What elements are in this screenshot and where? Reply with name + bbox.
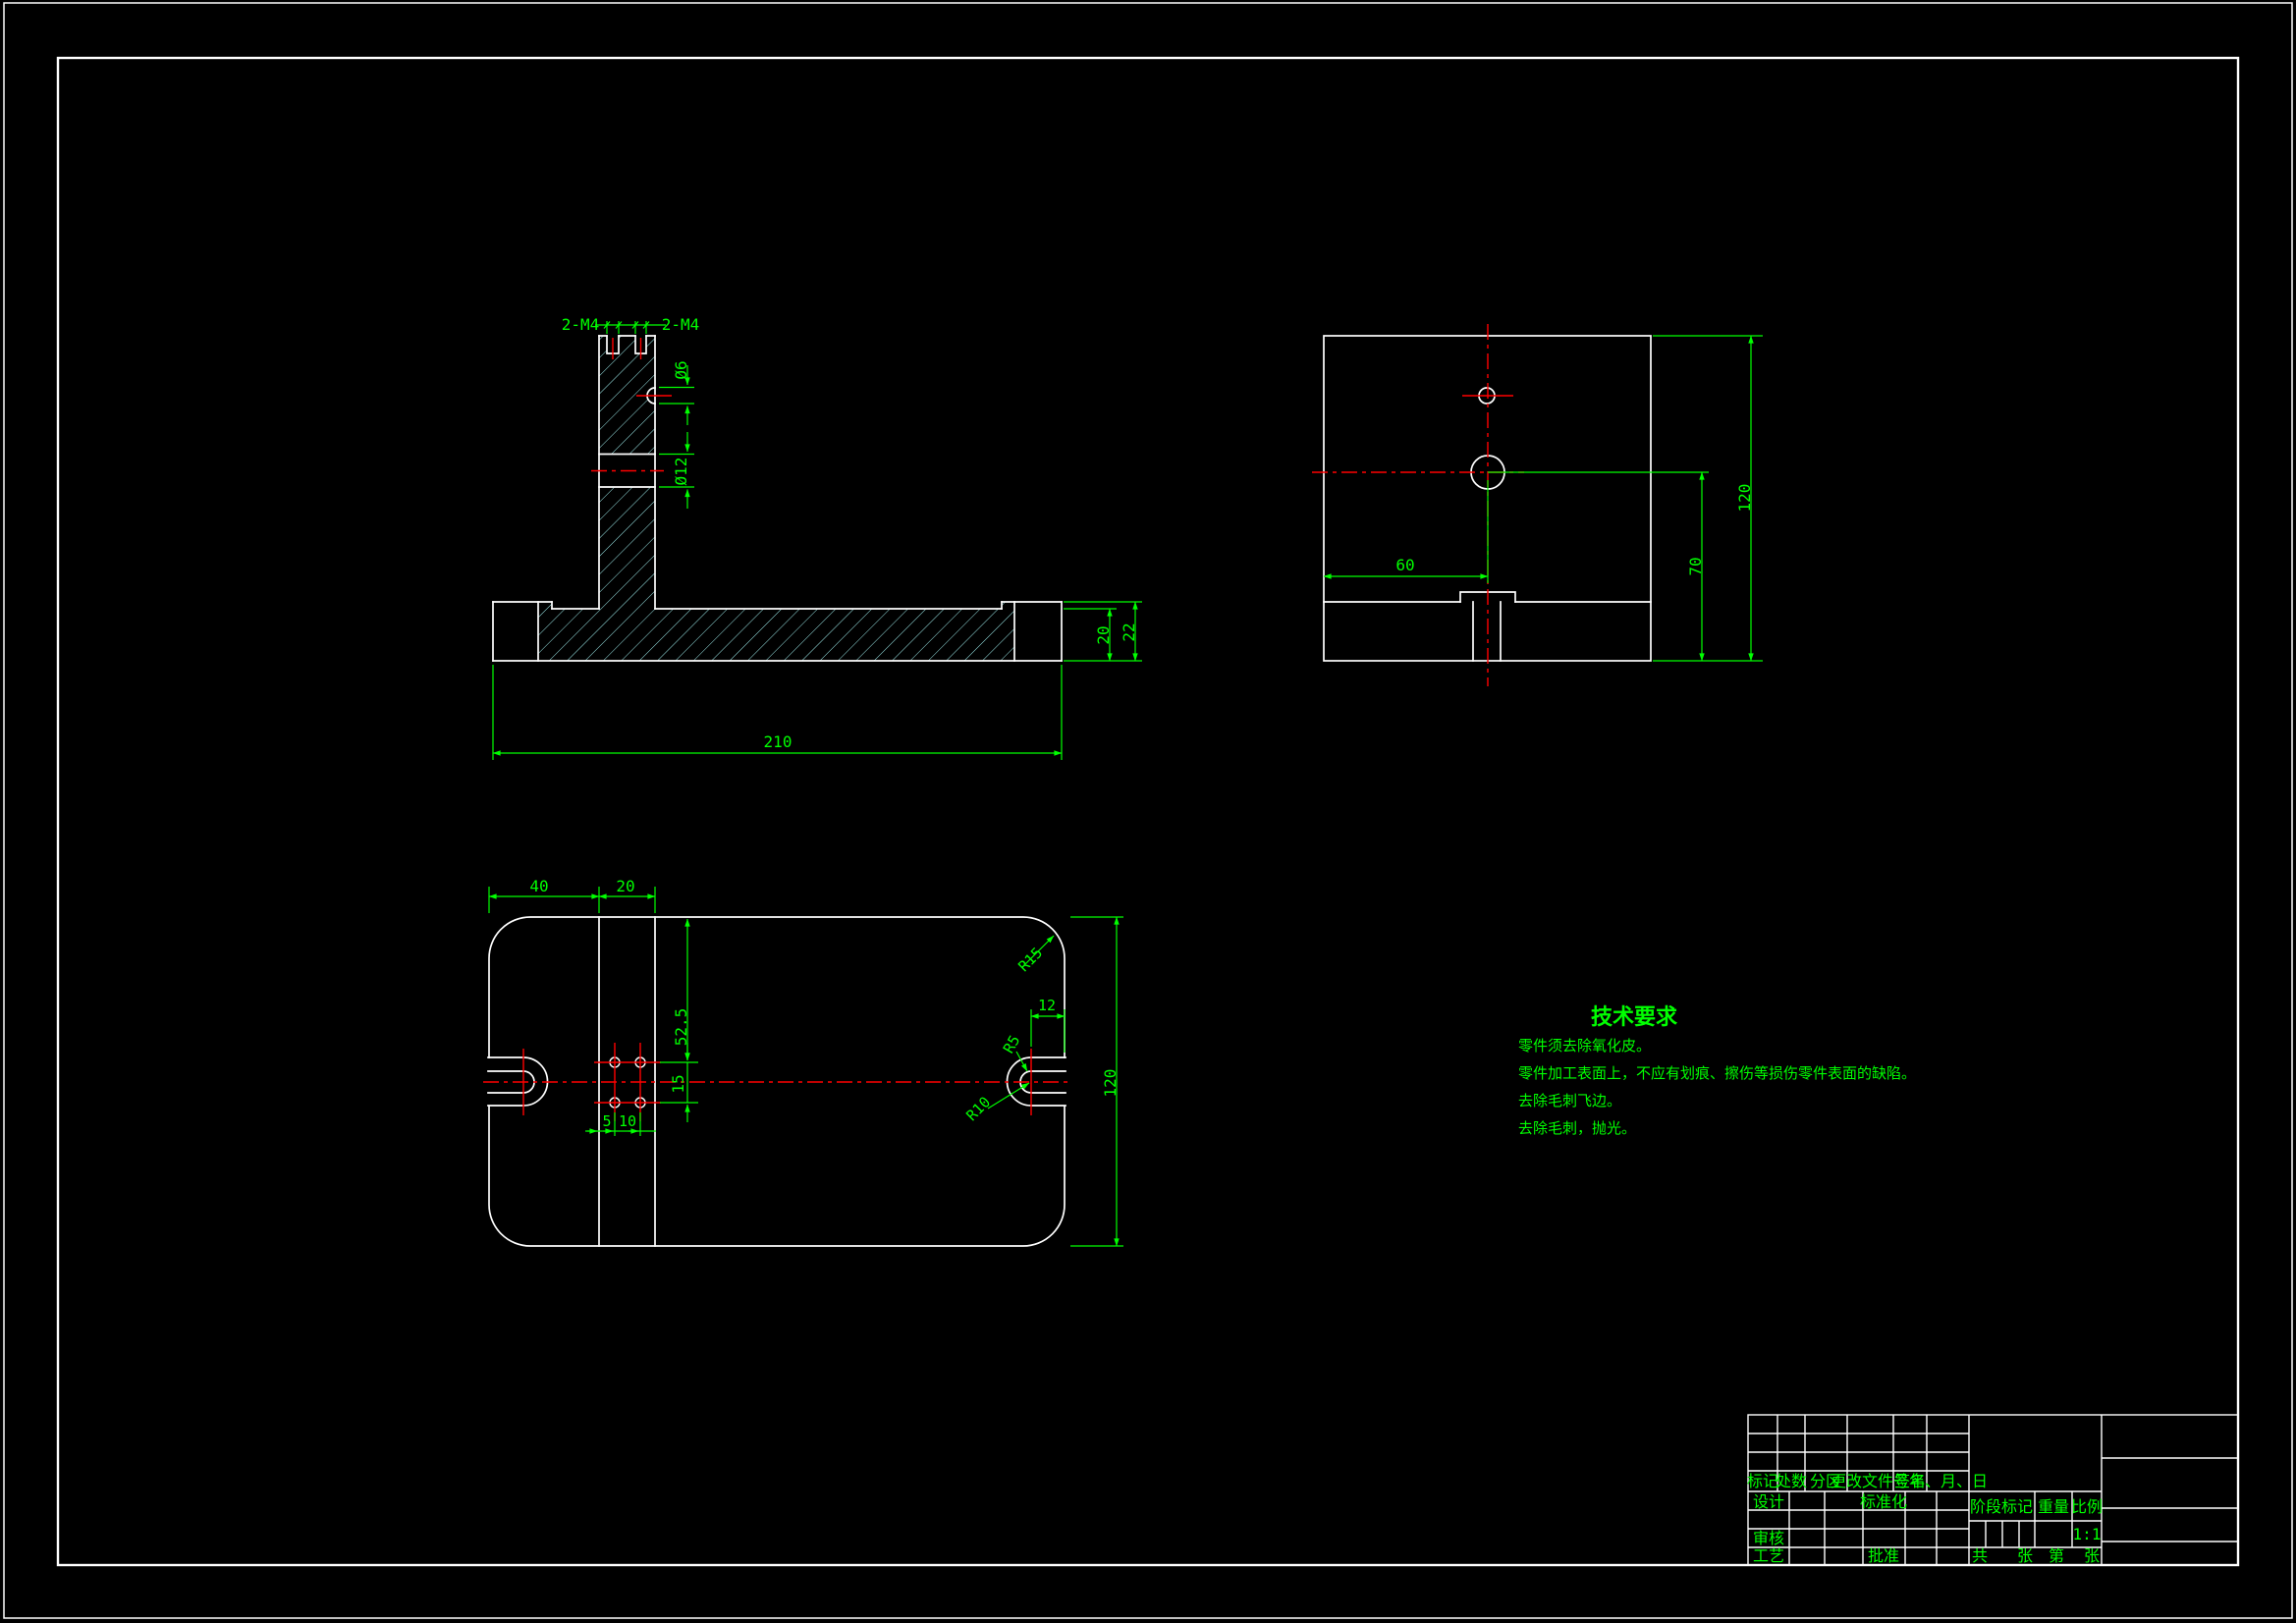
sheet-page-sheet: 张	[2084, 1546, 2100, 1565]
dim-holes-from-top: 52.5	[672, 1008, 690, 1047]
dim-hole-col-spacing: 10	[619, 1112, 636, 1130]
drawing-sheet: 2-M4 2-M4 Ø6 Ø12 210 20 22	[0, 0, 2296, 1623]
dim-base-width: 210	[764, 732, 793, 751]
side-centerlines	[1312, 324, 1524, 686]
role-standardization: 标准化	[1860, 1492, 1907, 1511]
plan-dimensions: 40 20 52.5 15 5 10 12 120	[489, 877, 1123, 1246]
tech-req-line-4: 去除毛刺，抛光。	[1518, 1119, 1636, 1137]
scale-label: 比例	[2071, 1497, 2103, 1516]
scale-value: 1:1	[2073, 1525, 2102, 1543]
side-view: 60 70 120	[1312, 324, 1763, 686]
tech-req-title: 技术要求	[1591, 1005, 1677, 1030]
dim-hole-row-spacing: 15	[669, 1074, 687, 1093]
dim-hole-offset-x: 60	[1395, 556, 1414, 574]
dim-slot-outer-radius: R10	[962, 1093, 994, 1124]
rev-header-count: 处数	[1776, 1472, 1807, 1490]
rev-header-date: 年、月、日	[1909, 1472, 1988, 1490]
dim-hole-offset-y: 70	[1686, 557, 1705, 575]
dim-slot-inner-radius: R5	[1000, 1032, 1024, 1056]
front-dimensions: 2-M4 2-M4 Ø6 Ø12 210 20 22	[493, 315, 1142, 760]
role-audit: 审核	[1753, 1529, 1784, 1547]
tech-req-line-2: 零件加工表面上，不应有划痕、擦伤等损伤零件表面的缺陷。	[1518, 1064, 1916, 1082]
role-process: 工艺	[1753, 1546, 1784, 1565]
front-section-view: 2-M4 2-M4 Ø6 Ø12 210 20 22	[493, 315, 1142, 760]
technical-requirements: 技术要求 零件须去除氧化皮。 零件加工表面上，不应有划痕、擦伤等损伤零件表面的缺…	[1518, 1005, 1916, 1137]
cad-application-canvas: 2-M4 2-M4 Ø6 Ø12 210 20 22	[0, 0, 2296, 1623]
rev-header-mark: 标记	[1747, 1472, 1778, 1490]
sheet-total-label: 共	[1972, 1546, 1988, 1565]
weight-label: 重量	[2038, 1497, 2069, 1516]
dim-end-thickness: 22	[1120, 622, 1138, 641]
sheet-border	[4, 3, 2292, 1618]
role-design: 设计	[1753, 1492, 1784, 1511]
plan-view: 40 20 52.5 15 5 10 12 120	[483, 877, 1123, 1246]
dim-thread-left: 2-M4	[562, 315, 600, 334]
dim-column-offset: 40	[529, 877, 548, 895]
dim-cross-hole: Ø12	[672, 458, 690, 486]
stage-label: 阶段标记	[1970, 1497, 2033, 1516]
dim-side-hole: Ø6	[672, 360, 690, 379]
sheet-page-label: 第	[2049, 1546, 2064, 1565]
dim-thread-right: 2-M4	[662, 315, 700, 334]
tech-req-line-1: 零件须去除氧化皮。	[1518, 1037, 1651, 1055]
dim-plate-depth: 120	[1101, 1069, 1120, 1098]
dim-column-width: 20	[616, 877, 634, 895]
title-block: 标记 处数 分区 更改文件号 签名 年、月、日 设计 标准化 审核 工艺 批准 …	[1747, 1415, 2238, 1565]
dim-hole-col-offset: 5	[602, 1112, 611, 1130]
dim-depth: 120	[1735, 484, 1754, 513]
sheet-total-sheet: 张	[2017, 1546, 2033, 1565]
dim-base-thickness: 20	[1094, 625, 1113, 644]
title-block-labels: 标记 处数 分区 更改文件号 签名 年、月、日 设计 标准化 审核 工艺 批准 …	[1747, 1472, 2103, 1565]
role-approve: 批准	[1868, 1546, 1899, 1565]
side-dimensions: 60 70 120	[1324, 336, 1763, 661]
dim-slot-center-offset: 12	[1038, 997, 1056, 1014]
tech-req-line-3: 去除毛刺飞边。	[1518, 1092, 1621, 1109]
